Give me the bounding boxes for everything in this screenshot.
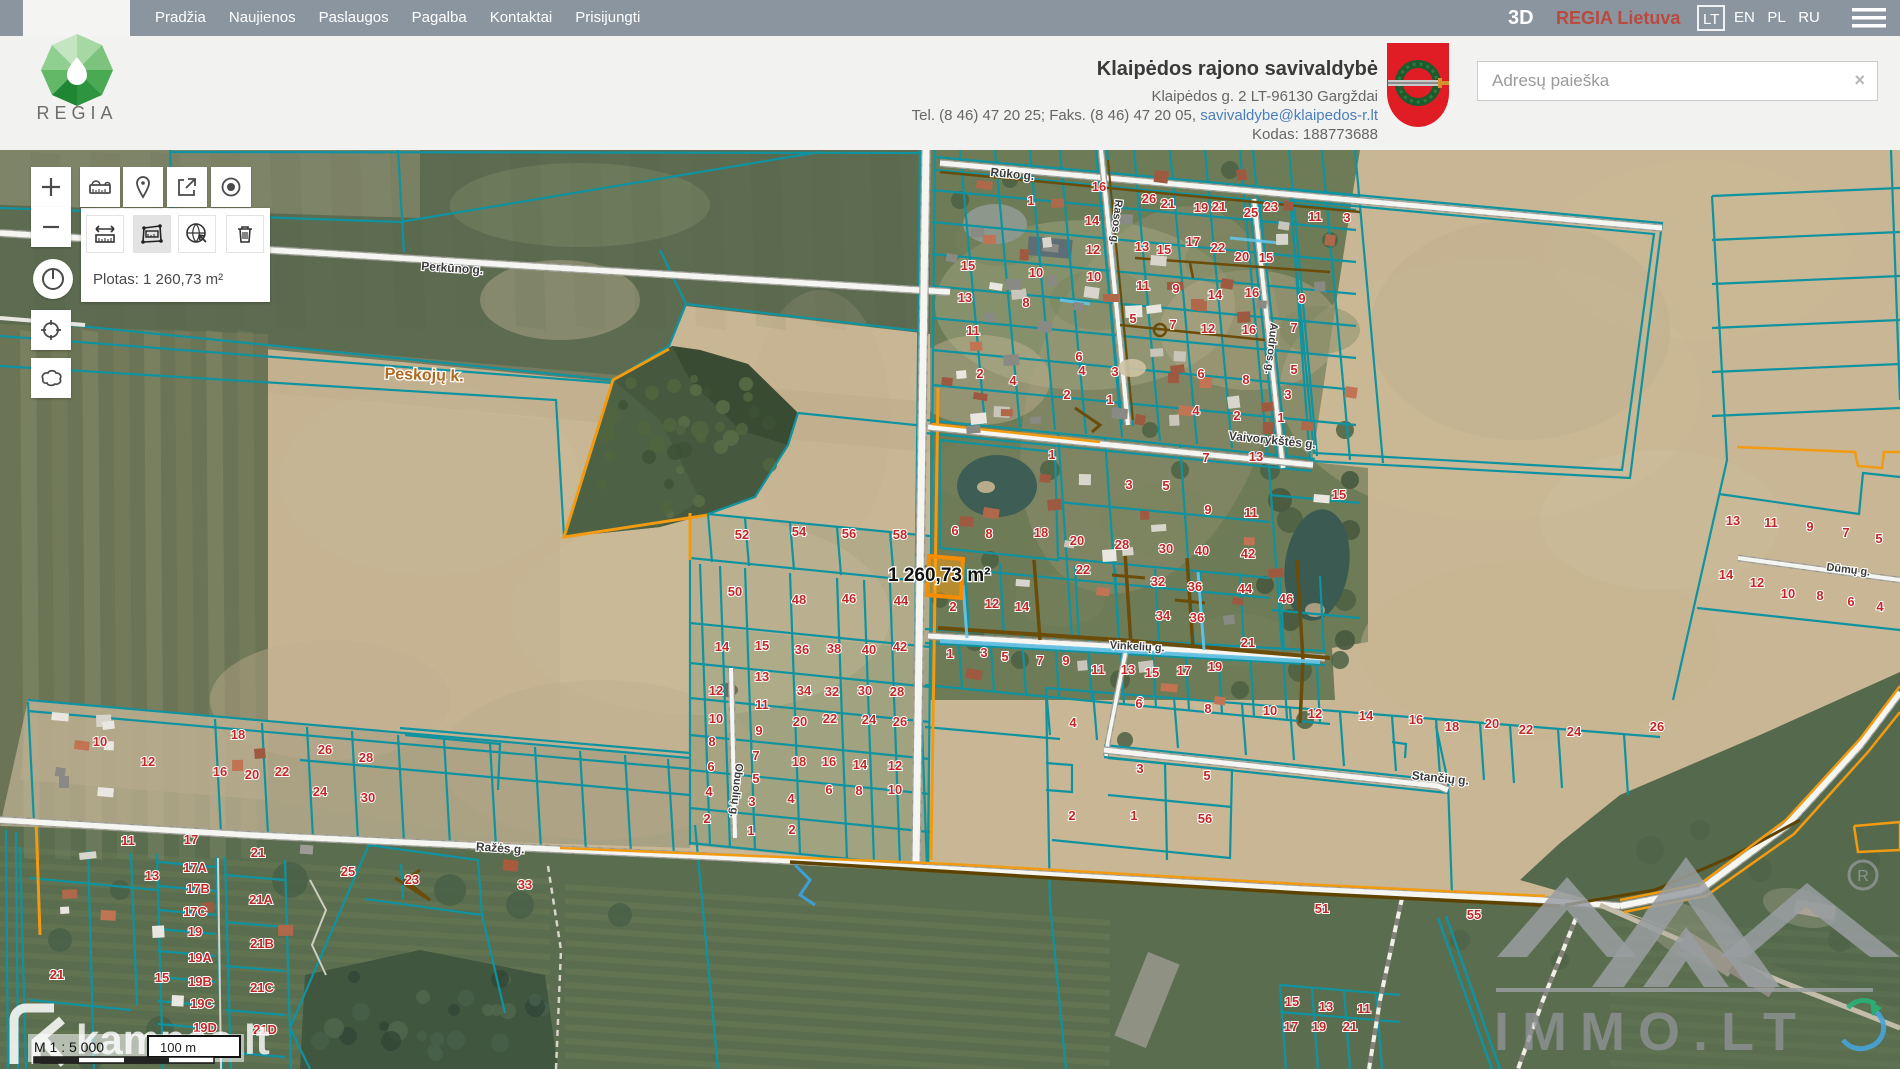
svg-text:13: 13	[145, 868, 159, 883]
svg-text:21A: 21A	[249, 892, 273, 907]
svg-text:58: 58	[893, 527, 907, 542]
svg-text:15: 15	[961, 258, 975, 273]
svg-text:10: 10	[888, 782, 902, 797]
svg-text:6: 6	[951, 523, 958, 538]
svg-text:28: 28	[1115, 537, 1129, 552]
svg-text:36: 36	[795, 642, 809, 657]
svg-text:10: 10	[1029, 265, 1043, 280]
svg-text:3: 3	[1343, 210, 1350, 225]
svg-text:16: 16	[822, 754, 836, 769]
svg-text:1: 1	[1048, 447, 1055, 462]
svg-text:21: 21	[1343, 1019, 1357, 1034]
svg-text:2: 2	[949, 599, 956, 614]
svg-text:8: 8	[985, 526, 992, 541]
svg-text:15: 15	[1332, 487, 1346, 502]
svg-text:4: 4	[1876, 599, 1884, 614]
svg-text:13: 13	[1726, 513, 1740, 528]
svg-text:42: 42	[893, 639, 907, 654]
svg-text:13: 13	[1135, 239, 1149, 254]
svg-text:55: 55	[1467, 907, 1481, 922]
svg-text:100 m: 100 m	[160, 1040, 196, 1055]
svg-text:7: 7	[752, 748, 759, 763]
svg-text:4: 4	[705, 784, 713, 799]
svg-text:2: 2	[788, 822, 795, 837]
svg-text:16: 16	[1409, 712, 1423, 727]
svg-text:33: 33	[518, 877, 532, 892]
svg-text:30: 30	[1159, 541, 1173, 556]
svg-text:Ražės g.: Ražės g.	[476, 840, 525, 857]
svg-text:12: 12	[1308, 706, 1322, 721]
svg-text:14: 14	[1359, 708, 1374, 723]
svg-text:9: 9	[1298, 291, 1305, 306]
svg-text:6: 6	[1135, 696, 1142, 711]
svg-text:46: 46	[1279, 591, 1293, 606]
svg-text:38: 38	[827, 641, 841, 656]
svg-text:18: 18	[792, 754, 806, 769]
svg-text:7: 7	[1202, 450, 1209, 465]
svg-text:17A: 17A	[183, 860, 207, 875]
svg-text:16: 16	[1242, 322, 1256, 337]
svg-text:6: 6	[825, 782, 832, 797]
svg-text:10: 10	[1087, 269, 1101, 284]
svg-text:32: 32	[1151, 574, 1165, 589]
svg-text:22: 22	[275, 764, 289, 779]
svg-text:48: 48	[792, 592, 806, 607]
svg-text:40: 40	[1195, 543, 1209, 558]
svg-text:14: 14	[715, 639, 730, 654]
svg-text:6: 6	[1075, 349, 1082, 364]
svg-text:22: 22	[1211, 240, 1225, 255]
svg-text:13: 13	[958, 290, 972, 305]
svg-text:20: 20	[793, 714, 807, 729]
svg-text:15: 15	[1145, 665, 1159, 680]
svg-text:3: 3	[1136, 761, 1143, 776]
svg-text:13: 13	[1319, 999, 1333, 1014]
svg-text:12: 12	[1086, 242, 1100, 257]
svg-text:3: 3	[980, 645, 987, 660]
svg-text:36: 36	[1188, 579, 1202, 594]
svg-text:M 1 : 5 000: M 1 : 5 000	[34, 1039, 104, 1055]
svg-text:17B: 17B	[186, 881, 210, 896]
svg-text:3: 3	[748, 794, 755, 809]
svg-text:8: 8	[1242, 372, 1249, 387]
svg-text:1: 1	[946, 646, 953, 661]
svg-text:5: 5	[1162, 478, 1169, 493]
svg-text:44: 44	[894, 593, 909, 608]
svg-text:8: 8	[1816, 588, 1823, 603]
svg-text:8: 8	[1204, 701, 1211, 716]
svg-text:19C: 19C	[190, 996, 214, 1011]
svg-text:32: 32	[825, 684, 839, 699]
svg-text:6: 6	[1847, 594, 1854, 609]
svg-text:8: 8	[1022, 295, 1029, 310]
svg-text:24: 24	[862, 712, 877, 727]
svg-text:22: 22	[823, 711, 837, 726]
svg-text:16: 16	[213, 764, 227, 779]
svg-text:11: 11	[755, 697, 769, 712]
svg-text:14: 14	[1085, 213, 1100, 228]
svg-text:22: 22	[1076, 562, 1090, 577]
svg-text:24: 24	[1567, 724, 1582, 739]
svg-text:20: 20	[245, 767, 259, 782]
svg-text:17: 17	[1177, 663, 1191, 678]
svg-text:26: 26	[1142, 191, 1156, 206]
svg-text:R: R	[1857, 868, 1869, 885]
svg-text:12: 12	[888, 758, 902, 773]
svg-text:19B: 19B	[188, 974, 212, 989]
svg-text:15: 15	[1259, 250, 1273, 265]
svg-text:3: 3	[1284, 387, 1291, 402]
svg-text:14: 14	[1208, 287, 1223, 302]
svg-text:26: 26	[318, 742, 332, 757]
svg-text:11: 11	[1357, 1001, 1371, 1016]
svg-text:8: 8	[708, 734, 715, 749]
svg-text:1: 1	[1027, 193, 1034, 208]
svg-text:17: 17	[1186, 234, 1200, 249]
svg-text:16: 16	[1092, 179, 1106, 194]
svg-text:13: 13	[1249, 449, 1263, 464]
svg-text:20: 20	[1485, 716, 1499, 731]
svg-text:15: 15	[1285, 994, 1299, 1009]
svg-text:9: 9	[1062, 653, 1069, 668]
svg-text:21: 21	[1212, 199, 1226, 214]
svg-text:18: 18	[231, 727, 245, 742]
svg-text:2: 2	[1068, 808, 1075, 823]
svg-text:12: 12	[141, 754, 155, 769]
svg-text:21C: 21C	[250, 980, 274, 995]
svg-text:21B: 21B	[250, 936, 274, 951]
svg-text:12: 12	[1201, 321, 1215, 336]
svg-text:15: 15	[755, 638, 769, 653]
svg-text:4: 4	[1192, 403, 1200, 418]
svg-text:9: 9	[1204, 502, 1211, 517]
svg-text:10: 10	[1781, 586, 1795, 601]
svg-text:11: 11	[1244, 505, 1258, 520]
svg-text:5: 5	[1001, 649, 1008, 664]
svg-text:28: 28	[359, 750, 373, 765]
svg-text:2: 2	[1233, 408, 1240, 423]
svg-text:44: 44	[1238, 581, 1253, 596]
svg-text:3: 3	[1125, 477, 1132, 492]
svg-text:14: 14	[853, 757, 868, 772]
svg-text:7: 7	[1842, 525, 1849, 540]
svg-text:10: 10	[1263, 703, 1277, 718]
svg-text:2: 2	[976, 366, 983, 381]
svg-text:56: 56	[842, 526, 856, 541]
svg-text:51: 51	[1315, 901, 1329, 916]
svg-text:5: 5	[1203, 768, 1210, 783]
svg-text:25: 25	[341, 864, 355, 879]
svg-text:1 260,73 m²: 1 260,73 m²	[888, 565, 990, 586]
svg-text:6: 6	[707, 759, 714, 774]
svg-text:34: 34	[797, 683, 812, 698]
svg-text:54: 54	[792, 524, 807, 539]
svg-text:36: 36	[1190, 610, 1204, 625]
svg-text:9: 9	[1172, 281, 1179, 296]
svg-text:19: 19	[1194, 200, 1208, 215]
svg-text:13: 13	[1121, 662, 1135, 677]
svg-text:30: 30	[858, 683, 872, 698]
svg-text:17: 17	[184, 832, 198, 847]
svg-text:23: 23	[405, 872, 419, 887]
svg-text:IMMO.LT: IMMO.LT	[1494, 1002, 1809, 1062]
svg-text:12: 12	[1750, 575, 1764, 590]
svg-text:19: 19	[188, 924, 202, 939]
svg-text:3: 3	[1111, 364, 1118, 379]
svg-text:15: 15	[155, 970, 169, 985]
svg-text:19: 19	[1312, 1019, 1326, 1034]
svg-text:1: 1	[1277, 410, 1284, 425]
svg-text:20: 20	[1235, 249, 1249, 264]
svg-text:9: 9	[1806, 519, 1813, 534]
svg-text:42: 42	[1241, 546, 1255, 561]
svg-text:40: 40	[862, 642, 876, 657]
svg-text:11: 11	[121, 833, 135, 848]
svg-text:15: 15	[1157, 242, 1171, 257]
svg-text:23: 23	[1264, 199, 1278, 214]
svg-text:2: 2	[1063, 387, 1070, 402]
svg-text:5: 5	[1129, 311, 1136, 326]
svg-text:5: 5	[1875, 531, 1882, 546]
svg-text:30: 30	[361, 790, 375, 805]
svg-text:7: 7	[1290, 320, 1297, 335]
svg-text:26: 26	[1650, 719, 1664, 734]
svg-text:1: 1	[1130, 808, 1137, 823]
svg-text:17: 17	[1284, 1019, 1298, 1034]
svg-text:21: 21	[50, 967, 64, 982]
svg-text:21: 21	[1161, 196, 1175, 211]
svg-text:4: 4	[1069, 715, 1077, 730]
svg-text:Peskojų k.: Peskojų k.	[384, 366, 464, 386]
svg-text:50: 50	[728, 584, 742, 599]
svg-text:16: 16	[1245, 285, 1259, 300]
svg-text:24: 24	[313, 784, 328, 799]
svg-text:12: 12	[985, 596, 999, 611]
svg-text:7: 7	[1169, 317, 1176, 332]
svg-text:1: 1	[747, 823, 754, 838]
svg-text:7: 7	[1036, 653, 1043, 668]
svg-text:28: 28	[890, 684, 904, 699]
svg-text:22: 22	[1519, 722, 1533, 737]
svg-text:5: 5	[752, 771, 759, 786]
svg-text:10: 10	[709, 711, 723, 726]
svg-text:21: 21	[251, 845, 265, 860]
svg-text:2: 2	[703, 811, 710, 826]
svg-text:34: 34	[1156, 608, 1171, 623]
svg-text:18: 18	[1034, 525, 1048, 540]
svg-text:13: 13	[755, 669, 769, 684]
svg-text:14: 14	[1015, 599, 1030, 614]
svg-text:56: 56	[1198, 811, 1212, 826]
svg-text:46: 46	[842, 591, 856, 606]
svg-text:5: 5	[1290, 362, 1297, 377]
svg-text:REGIA: REGIA	[36, 103, 117, 123]
svg-text:4: 4	[787, 791, 795, 806]
svg-text:6: 6	[1197, 366, 1204, 381]
svg-text:11: 11	[1308, 209, 1322, 224]
svg-text:11: 11	[1136, 278, 1150, 293]
svg-text:14: 14	[1719, 567, 1734, 582]
svg-text:11: 11	[966, 323, 980, 338]
svg-text:9: 9	[755, 723, 762, 738]
svg-text:52: 52	[735, 527, 749, 542]
svg-text:19: 19	[1208, 659, 1222, 674]
svg-text:26: 26	[893, 714, 907, 729]
svg-text:4: 4	[1009, 373, 1017, 388]
svg-text:12: 12	[709, 683, 723, 698]
svg-text:20: 20	[1070, 533, 1084, 548]
svg-text:8: 8	[855, 783, 862, 798]
svg-text:11: 11	[1091, 662, 1105, 677]
svg-text:21: 21	[1241, 635, 1255, 650]
svg-text:17C: 17C	[183, 904, 207, 919]
svg-text:11: 11	[1764, 515, 1778, 530]
svg-text:18: 18	[1445, 719, 1459, 734]
svg-text:10: 10	[93, 734, 107, 749]
svg-text:25: 25	[1244, 205, 1258, 220]
svg-text:4: 4	[1078, 363, 1086, 378]
svg-text:1: 1	[1106, 392, 1113, 407]
svg-text:19A: 19A	[188, 950, 212, 965]
